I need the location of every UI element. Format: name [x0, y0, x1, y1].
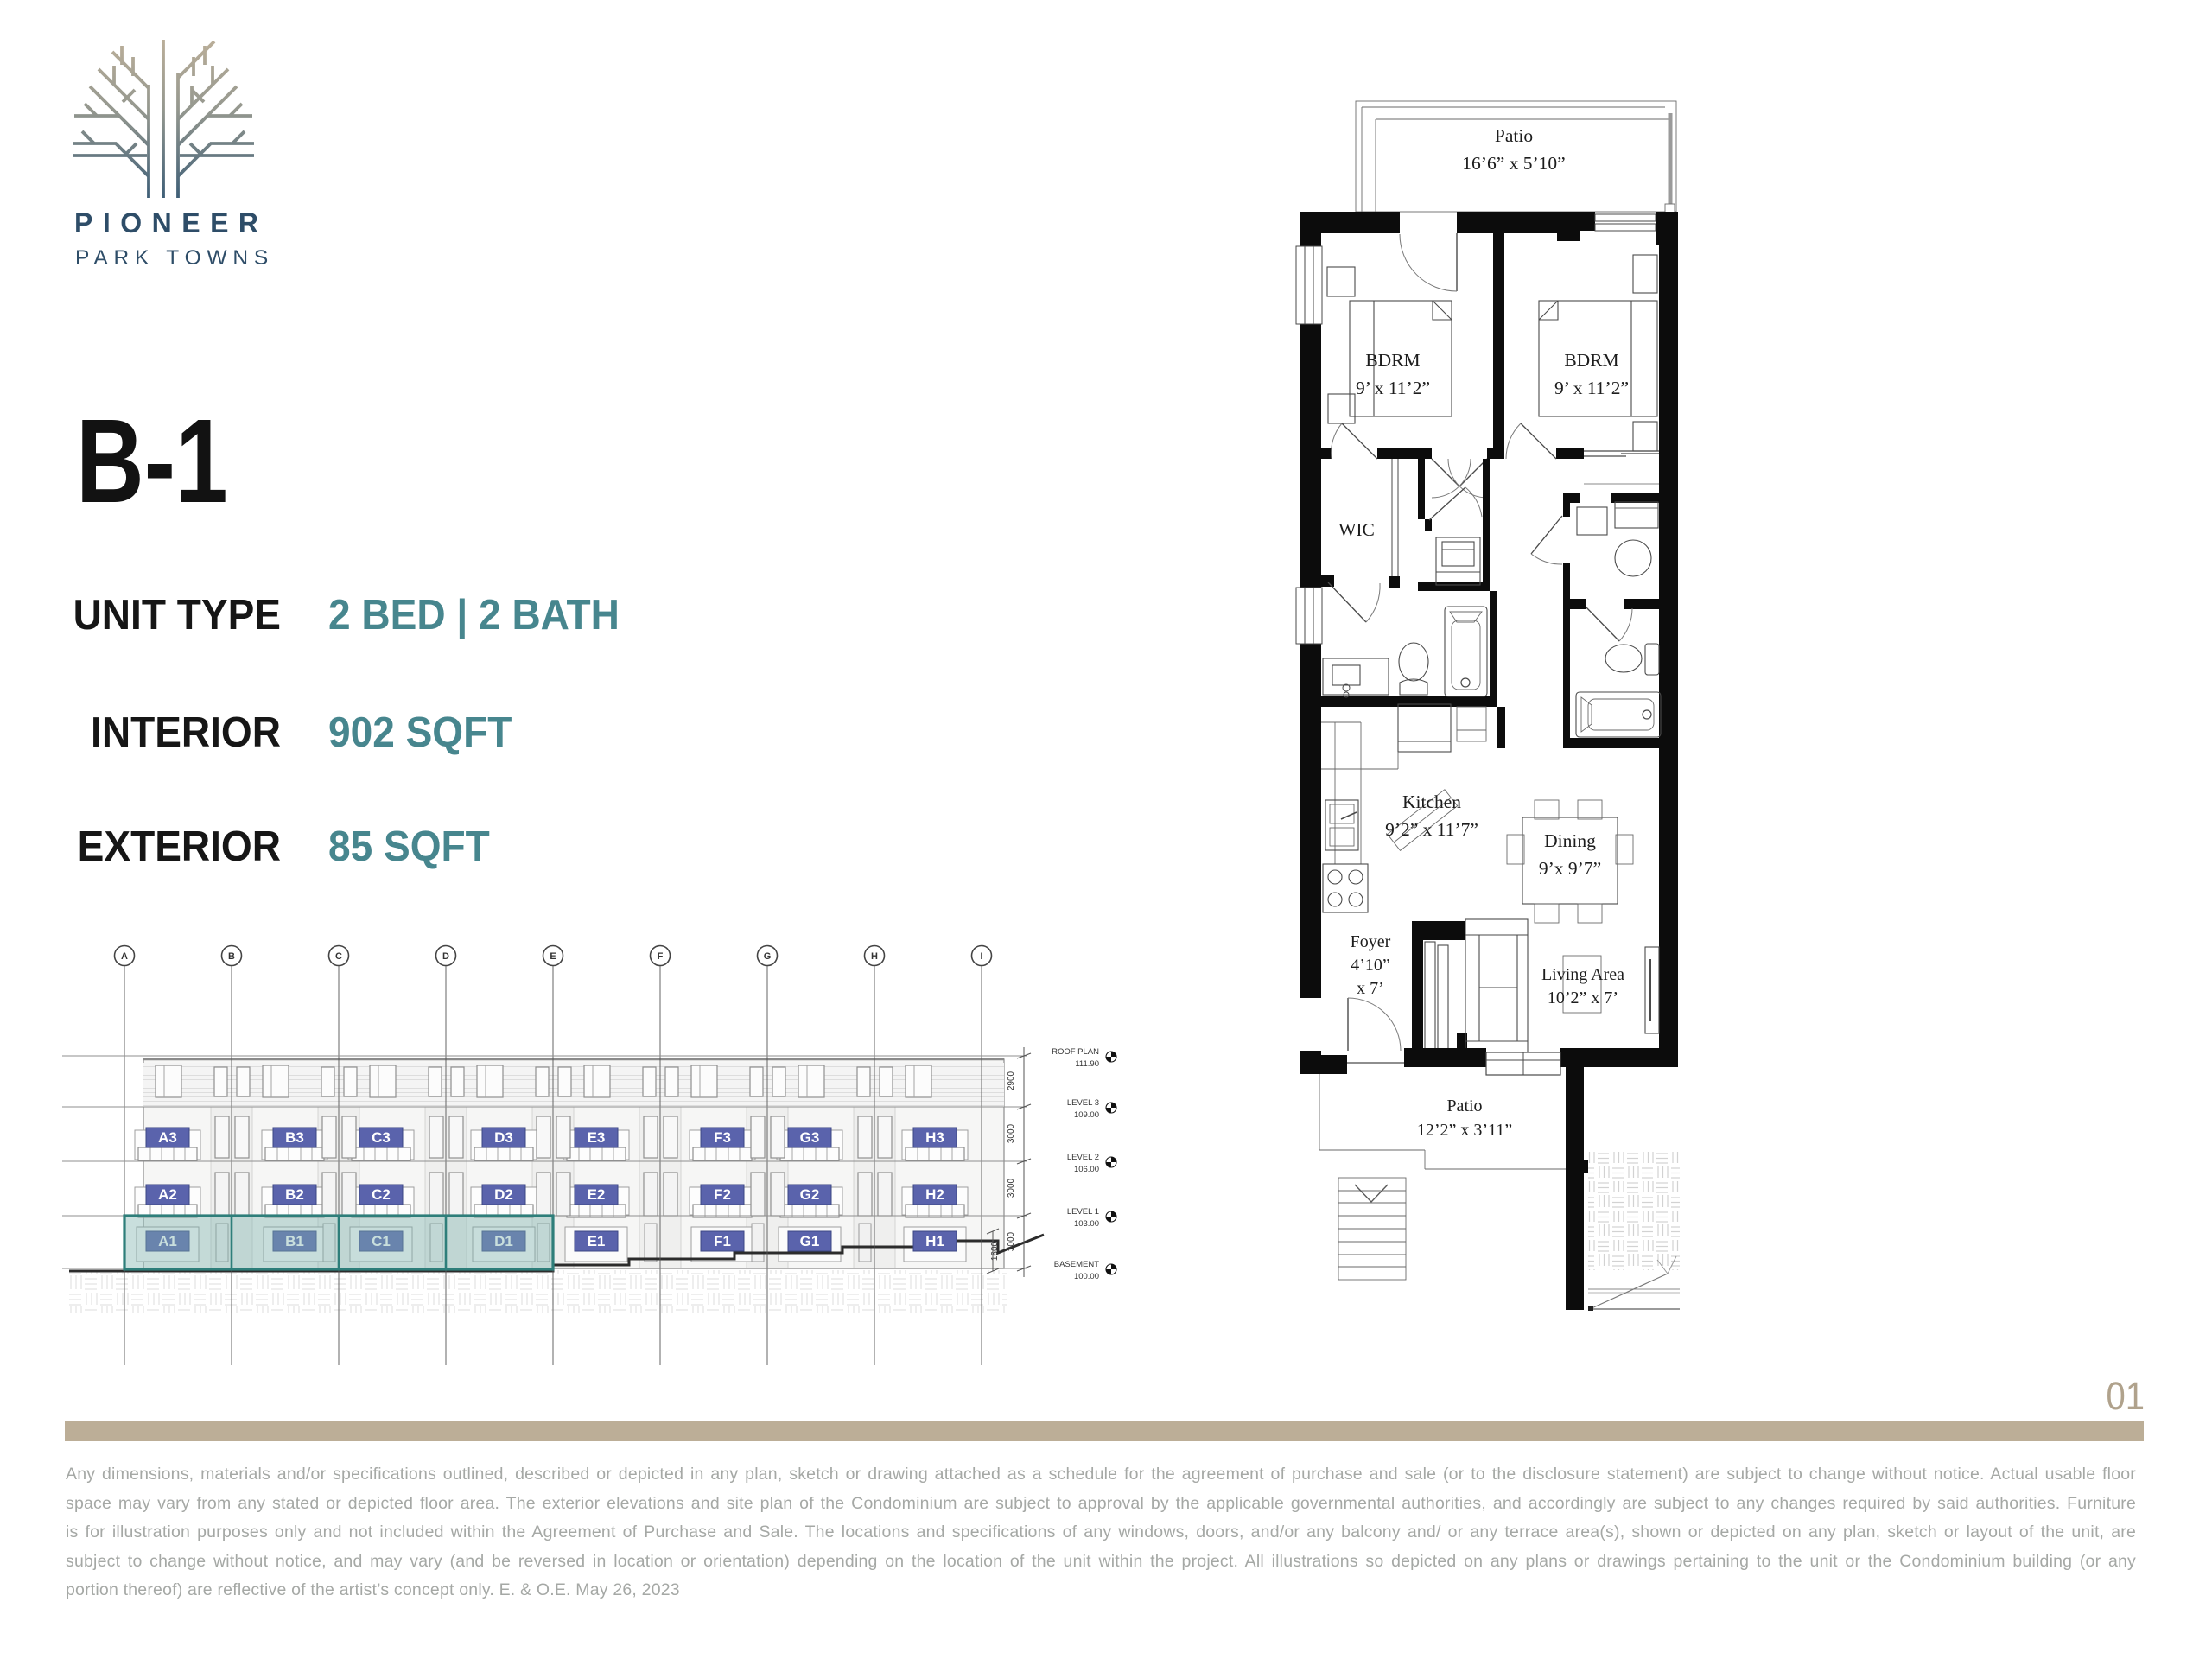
svg-text:WIC: WIC	[1338, 519, 1375, 540]
svg-text:G3: G3	[800, 1129, 820, 1146]
svg-text:C: C	[335, 951, 342, 962]
svg-text:9’ x 11’2”: 9’ x 11’2”	[1554, 378, 1629, 398]
svg-text:Living Area: Living Area	[1541, 965, 1624, 984]
svg-text:H3: H3	[925, 1129, 944, 1146]
svg-text:E: E	[550, 951, 556, 962]
svg-text:9’x 9’7”: 9’x 9’7”	[1539, 858, 1601, 879]
svg-text:BASEMENT: BASEMENT	[1054, 1260, 1099, 1269]
svg-text:E3: E3	[588, 1129, 606, 1146]
svg-text:LEVEL 1: LEVEL 1	[1067, 1207, 1099, 1217]
svg-text:3000: 3000	[1007, 1231, 1016, 1251]
svg-text:BDRM: BDRM	[1365, 350, 1420, 371]
svg-text:E2: E2	[588, 1186, 606, 1203]
svg-text:D2: D2	[494, 1186, 513, 1203]
svg-text:100.00: 100.00	[1074, 1272, 1099, 1281]
svg-text:3000: 3000	[1007, 1178, 1016, 1198]
svg-text:LEVEL 3: LEVEL 3	[1067, 1098, 1099, 1108]
svg-text:4’10”: 4’10”	[1351, 956, 1390, 975]
svg-text:1600: 1600	[990, 1241, 1000, 1261]
svg-text:F2: F2	[714, 1186, 731, 1203]
svg-text:Patio: Patio	[1495, 125, 1533, 146]
svg-text:G1: G1	[800, 1233, 820, 1249]
svg-text:BDRM: BDRM	[1564, 350, 1618, 371]
svg-text:F1: F1	[714, 1233, 731, 1249]
svg-text:B2: B2	[285, 1186, 304, 1203]
svg-text:9’2” x 11’7”: 9’2” x 11’7”	[1385, 819, 1478, 840]
svg-text:E1: E1	[588, 1233, 606, 1249]
svg-text:x 7’: x 7’	[1357, 979, 1384, 998]
svg-text:109.00: 109.00	[1074, 1110, 1099, 1120]
svg-text:A3: A3	[158, 1129, 177, 1146]
svg-text:2900: 2900	[1007, 1071, 1016, 1090]
svg-text:ROOF PLAN: ROOF PLAN	[1052, 1047, 1099, 1057]
svg-text:D: D	[442, 951, 449, 962]
svg-text:Dining: Dining	[1544, 830, 1596, 851]
svg-text:B3: B3	[285, 1129, 304, 1146]
svg-text:106.00: 106.00	[1074, 1165, 1099, 1174]
svg-text:D3: D3	[494, 1129, 513, 1146]
svg-text:Kitchen: Kitchen	[1402, 791, 1461, 812]
svg-text:10’2” x 7’: 10’2” x 7’	[1548, 988, 1618, 1007]
svg-text:G2: G2	[800, 1186, 820, 1203]
svg-text:F3: F3	[714, 1129, 731, 1146]
svg-text:I: I	[980, 951, 982, 962]
svg-text:103.00: 103.00	[1074, 1219, 1099, 1229]
svg-text:F: F	[658, 951, 664, 962]
svg-text:A2: A2	[158, 1186, 177, 1203]
svg-text:C2: C2	[372, 1186, 391, 1203]
svg-text:16’6” x 5’10”: 16’6” x 5’10”	[1462, 153, 1565, 174]
svg-text:Patio: Patio	[1446, 1096, 1482, 1116]
svg-text:A: A	[121, 951, 128, 962]
svg-text:C3: C3	[372, 1129, 391, 1146]
svg-text:LEVEL 2: LEVEL 2	[1067, 1153, 1099, 1162]
svg-text:G: G	[764, 951, 772, 962]
svg-text:B: B	[228, 951, 235, 962]
svg-text:H2: H2	[925, 1186, 944, 1203]
svg-text:Foyer: Foyer	[1351, 932, 1391, 951]
svg-text:3000: 3000	[1007, 1123, 1016, 1143]
svg-text:9’ x 11’2”: 9’ x 11’2”	[1356, 378, 1430, 398]
svg-text:12’2” x 3’11”: 12’2” x 3’11”	[1417, 1121, 1512, 1140]
svg-text:H: H	[871, 951, 878, 962]
svg-text:H1: H1	[925, 1233, 944, 1249]
svg-text:111.90: 111.90	[1075, 1059, 1099, 1069]
